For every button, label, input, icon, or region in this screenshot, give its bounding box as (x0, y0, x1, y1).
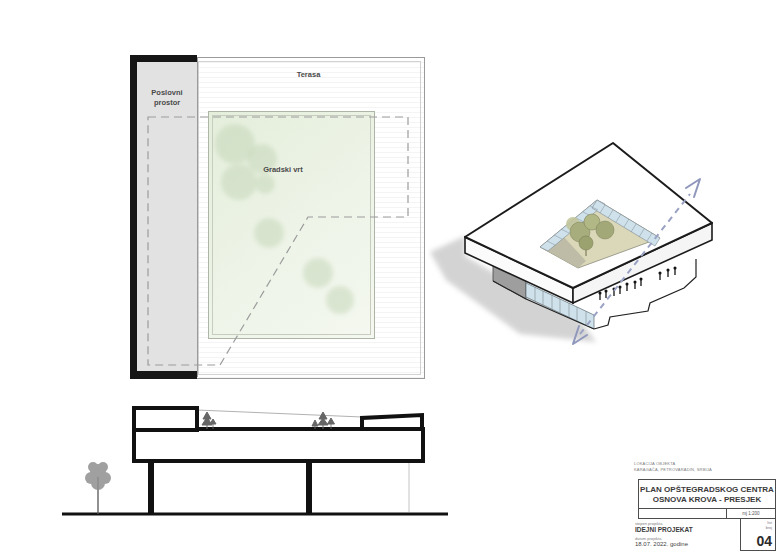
drawing-title-line2: OSNOVA KROVA - PRESJEK (639, 495, 775, 505)
sheet-number-box: list broj 04 (740, 518, 776, 551)
garden-label: Gradski vrt (248, 165, 318, 175)
section-wall (306, 461, 312, 514)
entourage-tree (85, 462, 111, 514)
section-main-slab (134, 429, 423, 461)
section-wall (148, 461, 154, 514)
scale-value: mj 1:200 (726, 509, 775, 518)
arrow-up-right-icon (686, 179, 700, 197)
sheet-number: 04 (756, 533, 772, 549)
date-value: 18.07. 2022. godine (635, 541, 688, 547)
stage-value: IDEJNI PROJEKAT (635, 526, 693, 533)
drawing-title-box: PLAN OPŠTEGRADSKOG CENTRA OSNOVA KROVA -… (638, 479, 776, 519)
plan-wall-bottom (130, 371, 197, 379)
drawing-title-line1: PLAN OPŠTEGRADSKOG CENTRA (639, 485, 775, 495)
scale-row: mj 1:200 (639, 508, 775, 518)
sheet-number-label: list broj (766, 521, 772, 530)
plan-wall-top (130, 55, 197, 62)
axonometric-view (428, 128, 763, 363)
section-left-volume (134, 408, 197, 430)
plan-wall-left (130, 55, 137, 379)
title-block: LOKACIJA OBJEKTA KARAGAČA, PETROVARADIN,… (633, 455, 779, 551)
section-drawing (60, 393, 450, 521)
section-right-volume (362, 415, 422, 429)
roof-plan: Poslovni prostor Terasa Gradski vrt (130, 55, 425, 379)
drawing-sheet: Poslovni prostor Terasa Gradski vrt (0, 0, 782, 553)
roof-slope-line (197, 410, 362, 417)
terrace-label: Terasa (194, 70, 423, 80)
business-space-label: Poslovni prostor (140, 88, 194, 108)
location-label: LOKACIJA OBJEKTA (634, 461, 675, 466)
location-value: KARAGAČA, PETROVARADIN, SRBIJA (634, 467, 712, 472)
